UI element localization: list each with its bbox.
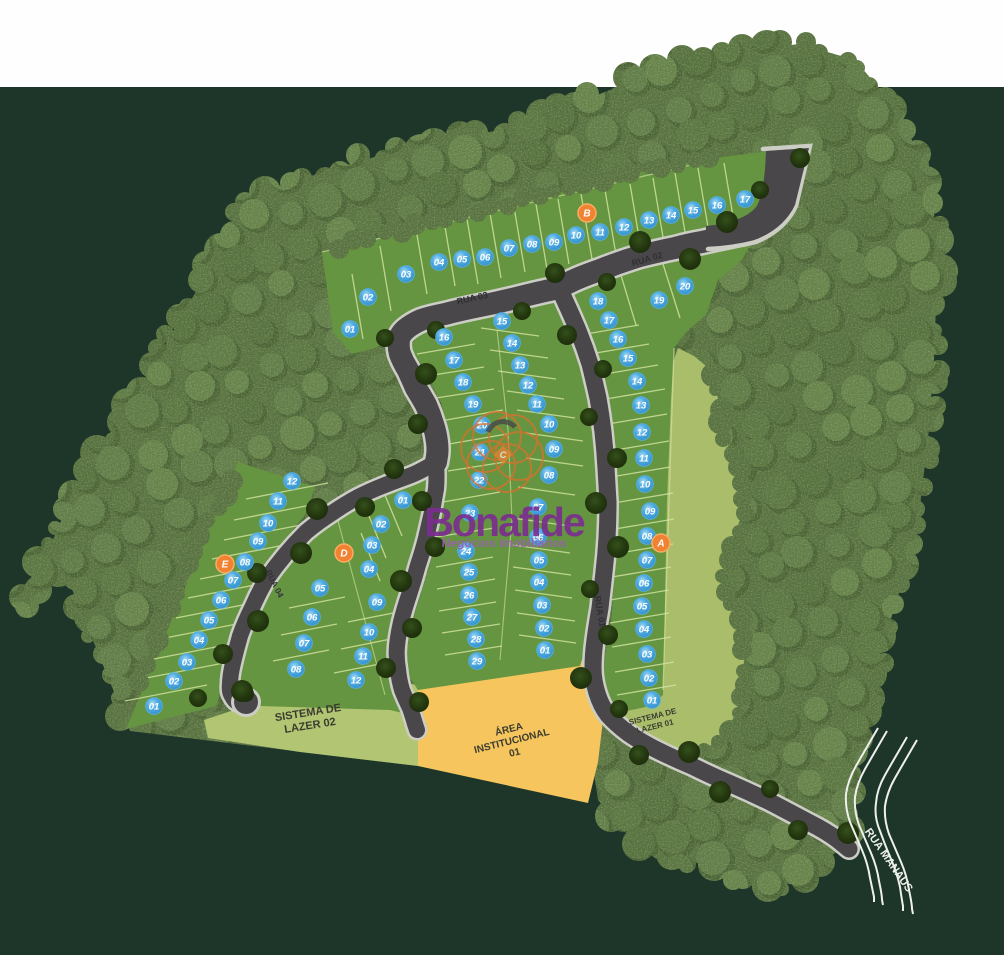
svg-text:16: 16 bbox=[712, 200, 723, 211]
svg-text:17: 17 bbox=[604, 315, 615, 326]
svg-text:08: 08 bbox=[527, 239, 538, 250]
svg-text:29: 29 bbox=[471, 656, 483, 667]
svg-text:26: 26 bbox=[463, 590, 475, 601]
svg-text:02: 02 bbox=[169, 676, 180, 687]
svg-text:C: C bbox=[500, 450, 507, 461]
svg-text:12: 12 bbox=[619, 222, 630, 233]
svg-text:10: 10 bbox=[640, 479, 651, 490]
svg-text:09: 09 bbox=[372, 597, 383, 608]
svg-text:04: 04 bbox=[639, 624, 650, 635]
svg-text:05: 05 bbox=[457, 254, 468, 265]
svg-text:14: 14 bbox=[666, 210, 677, 221]
svg-text:03: 03 bbox=[182, 657, 193, 668]
svg-text:11: 11 bbox=[595, 227, 605, 238]
svg-text:04: 04 bbox=[534, 577, 545, 588]
svg-text:11: 11 bbox=[532, 399, 542, 410]
svg-text:06: 06 bbox=[216, 595, 227, 606]
svg-text:16: 16 bbox=[439, 332, 450, 343]
svg-text:19: 19 bbox=[468, 399, 479, 410]
svg-text:02: 02 bbox=[644, 673, 655, 684]
svg-text:17: 17 bbox=[740, 194, 751, 205]
svg-text:12: 12 bbox=[351, 675, 362, 686]
svg-text:13: 13 bbox=[515, 360, 526, 371]
svg-text:04: 04 bbox=[434, 257, 445, 268]
svg-text:10: 10 bbox=[263, 518, 274, 529]
svg-text:16: 16 bbox=[613, 334, 624, 345]
svg-text:03: 03 bbox=[367, 540, 378, 551]
svg-text:05: 05 bbox=[315, 583, 326, 594]
svg-text:14: 14 bbox=[632, 376, 643, 387]
svg-text:03: 03 bbox=[401, 269, 412, 280]
svg-text:D: D bbox=[340, 549, 347, 560]
svg-text:05: 05 bbox=[637, 601, 648, 612]
svg-text:01: 01 bbox=[398, 495, 409, 506]
svg-text:04: 04 bbox=[364, 564, 375, 575]
svg-text:12: 12 bbox=[287, 476, 298, 487]
svg-text:08: 08 bbox=[291, 664, 302, 675]
svg-text:14: 14 bbox=[507, 338, 518, 349]
svg-text:09: 09 bbox=[645, 506, 656, 517]
svg-text:27: 27 bbox=[466, 612, 478, 623]
svg-text:08: 08 bbox=[642, 531, 653, 542]
svg-text:02: 02 bbox=[539, 623, 550, 634]
svg-text:01: 01 bbox=[345, 324, 356, 335]
svg-text:06: 06 bbox=[639, 578, 650, 589]
svg-text:12: 12 bbox=[637, 427, 648, 438]
svg-text:20: 20 bbox=[679, 281, 691, 292]
svg-text:11: 11 bbox=[358, 651, 368, 662]
svg-text:12: 12 bbox=[523, 380, 534, 391]
svg-text:03: 03 bbox=[537, 600, 548, 611]
svg-text:11: 11 bbox=[273, 496, 283, 507]
svg-text:02: 02 bbox=[376, 519, 387, 530]
svg-text:A: A bbox=[656, 539, 664, 550]
svg-text:01: 01 bbox=[149, 701, 160, 712]
svg-text:18: 18 bbox=[593, 296, 604, 307]
svg-text:06: 06 bbox=[480, 252, 491, 263]
svg-text:09: 09 bbox=[549, 237, 560, 248]
svg-text:02: 02 bbox=[363, 292, 374, 303]
svg-text:13: 13 bbox=[644, 215, 655, 226]
svg-text:10: 10 bbox=[364, 627, 375, 638]
svg-text:B: B bbox=[583, 209, 590, 220]
svg-text:07: 07 bbox=[642, 555, 653, 566]
svg-text:15: 15 bbox=[688, 205, 699, 216]
svg-text:13: 13 bbox=[636, 400, 647, 411]
svg-text:07: 07 bbox=[504, 243, 515, 254]
svg-text:15: 15 bbox=[497, 316, 508, 327]
svg-text:28: 28 bbox=[470, 634, 482, 645]
svg-text:09: 09 bbox=[253, 536, 264, 547]
svg-text:11: 11 bbox=[639, 453, 649, 464]
svg-text:08: 08 bbox=[240, 557, 251, 568]
svg-text:07: 07 bbox=[228, 575, 239, 586]
svg-text:01: 01 bbox=[540, 645, 551, 656]
svg-text:08: 08 bbox=[544, 470, 555, 481]
svg-text:E: E bbox=[222, 560, 229, 571]
svg-text:25: 25 bbox=[463, 567, 475, 578]
svg-text:05: 05 bbox=[534, 555, 545, 566]
svg-text:17: 17 bbox=[449, 355, 460, 366]
svg-text:15: 15 bbox=[623, 353, 634, 364]
svg-text:10: 10 bbox=[571, 230, 582, 241]
svg-text:09: 09 bbox=[549, 444, 560, 455]
svg-text:01: 01 bbox=[647, 695, 658, 706]
svg-text:05: 05 bbox=[204, 615, 215, 626]
svg-text:03: 03 bbox=[642, 649, 653, 660]
svg-text:19: 19 bbox=[654, 295, 665, 306]
svg-text:06: 06 bbox=[307, 612, 318, 623]
svg-text:04: 04 bbox=[194, 635, 205, 646]
svg-text:18: 18 bbox=[458, 377, 469, 388]
svg-text:Negócios Imobiliários: Negócios Imobiliários bbox=[442, 536, 567, 550]
svg-text:07: 07 bbox=[299, 638, 310, 649]
svg-text:10: 10 bbox=[544, 419, 555, 430]
